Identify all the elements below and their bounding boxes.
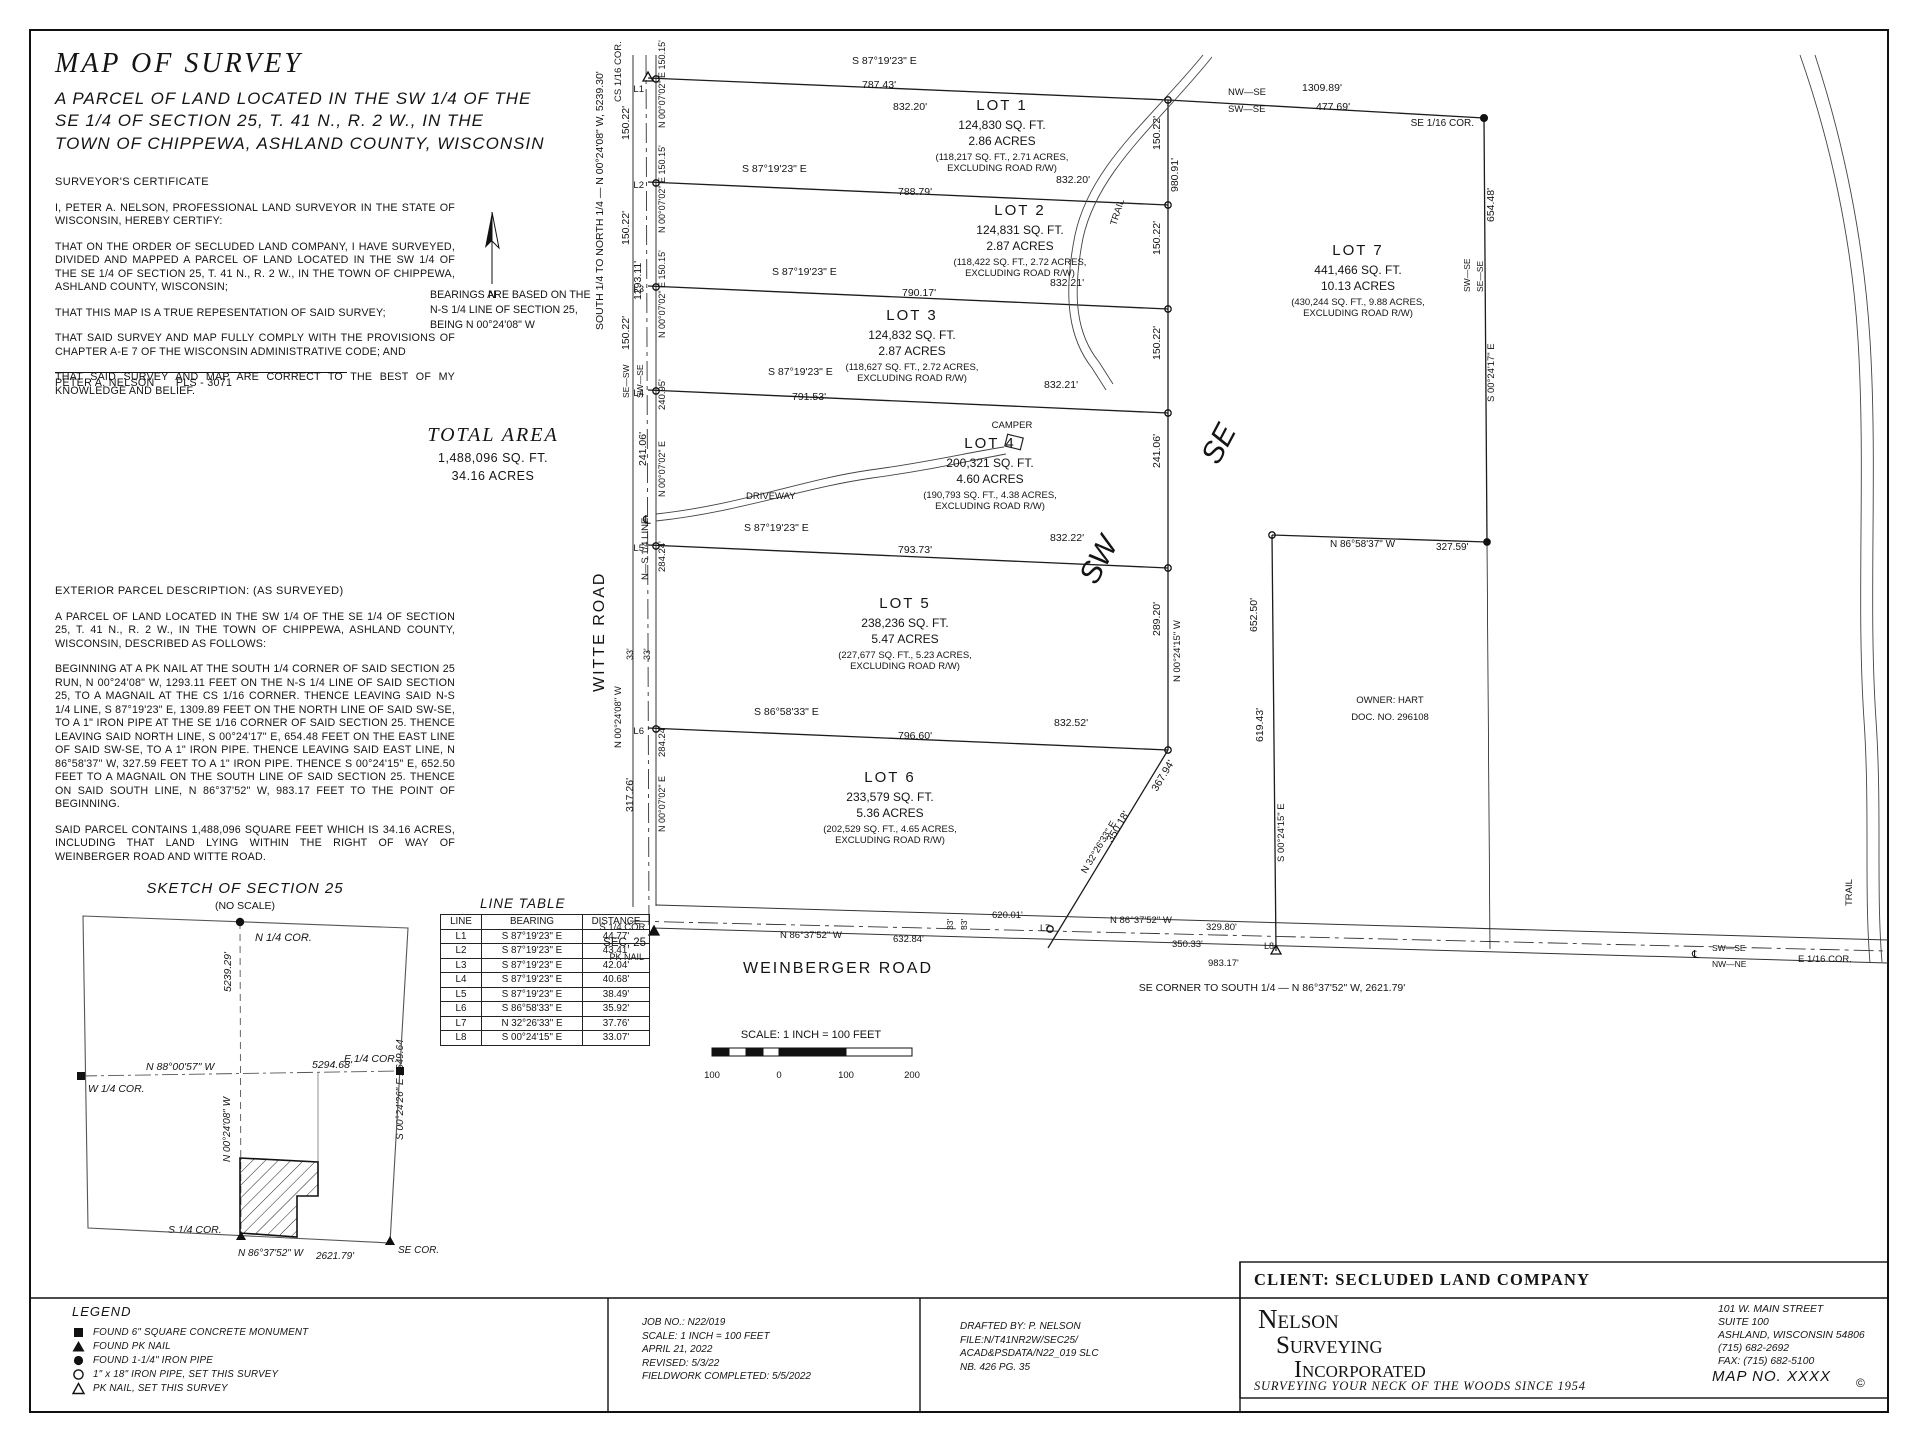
dimension-label: S 00°24'17" E <box>1486 343 1497 402</box>
certificate-paragraph: I, PETER A. NELSON, PROFESSIONAL LAND SU… <box>55 202 455 229</box>
lot-label-line: 5.47 ACRES <box>871 632 938 646</box>
lot-label-line: EXCLUDING ROAD R/W) <box>935 501 1045 512</box>
lot-label-line: EXCLUDING ROAD R/W) <box>1303 308 1413 319</box>
drafting-line: ACAD&PSDATA/N22_019 SLC <box>960 1347 1099 1361</box>
dimension-label: 329.80' <box>1206 922 1237 933</box>
lot-label-line: 124,831 SQ. FT. <box>976 223 1063 237</box>
dimension-label: 150.22' <box>1151 326 1163 360</box>
line-table-header-row: LINE BEARING DISTANCE <box>441 915 650 930</box>
dimension-label: 327.59' <box>1436 542 1469 553</box>
lot-label-line: 441,466 SQ. FT. <box>1314 263 1401 277</box>
lot-label-line: 4.60 ACRES <box>956 472 1023 486</box>
line-table-cell: S 87°19'23" E <box>482 973 583 988</box>
dimension-label: 832.52' <box>1054 717 1088 729</box>
map-number: MAP NO. XXXX <box>1712 1368 1831 1385</box>
drafting-line: NB. 426 PG. 35 <box>960 1361 1099 1375</box>
line-table-cell: S 87°19'23" E <box>482 987 583 1002</box>
signature-title: PLS - 3071 <box>176 377 232 389</box>
corner-label: CS 1/16 COR. <box>613 41 624 102</box>
dimension-label: 832.20' <box>893 101 927 113</box>
dimension-label: N 00°24'08" W <box>613 686 624 748</box>
line-table-row: L5S 87°19'23" E38.49' <box>441 987 650 1002</box>
road-label: WEINBERGER ROAD <box>743 960 933 977</box>
line-table-cell: S 00°24'15" E <box>482 1031 583 1046</box>
total-area-heading: TOTAL AREA <box>398 424 588 447</box>
total-area-acres: 34.16 ACRES <box>398 469 588 483</box>
corner-label: E 1/4 COR. <box>344 1053 398 1065</box>
dimension-label: 241.06' <box>1151 434 1163 468</box>
line-table-header: LINE <box>441 915 482 930</box>
lot-label-line: (118,422 SQ. FT., 2.72 ACRES, <box>954 257 1087 268</box>
bearings-line: BEING N 00°24'08" W <box>430 318 591 333</box>
dimension-label: SOUTH 1/4 TO NORTH 1/4 — N 00°24'08" W, … <box>594 71 606 330</box>
copyright-icon: © <box>1856 1376 1865 1390</box>
dimension-label: N 86°37'52" W <box>780 930 842 941</box>
line-table-cell: S 86°58'33" E <box>482 1002 583 1017</box>
line-table-row: L1S 87°19'23" E44.77' <box>441 929 650 944</box>
drafting-info-block: DRAFTED BY: P. NELSON FILE:N/T41NR2W/SEC… <box>960 1320 1099 1374</box>
lot-label-line: 5.36 ACRES <box>856 806 923 820</box>
firm-address: 101 W. MAIN STREET SUITE 100 ASHLAND, WI… <box>1718 1303 1865 1368</box>
dimension-label: S 00°24'15" E <box>1276 803 1287 862</box>
corner-label: W 1/4 COR. <box>88 1083 145 1095</box>
corner-label: SE 1/16 COR. <box>1411 118 1474 129</box>
lot-label-line: (190,793 SQ. FT., 4.38 ACRES, <box>923 490 1057 501</box>
dimension-label: 983.17' <box>1208 958 1239 969</box>
dimension-label: N 00°07'02" E 150.15' <box>657 250 667 338</box>
dimension-label: 150.22' <box>620 211 632 245</box>
filled-square-icon <box>72 1326 86 1339</box>
lot-label-line: LOT 6 <box>864 769 915 786</box>
filled-circle-icon <box>72 1354 86 1367</box>
open-triangle-icon <box>72 1382 86 1395</box>
job-info-line: SCALE: 1 INCH = 100 FEET <box>642 1330 811 1344</box>
legend-item-label: PK NAIL, SET THIS SURVEY <box>93 1383 228 1394</box>
line-table-cell: S 87°19'23" E <box>482 929 583 944</box>
line-table-cell: S 87°19'23" E <box>482 944 583 959</box>
job-info-block: JOB NO.: N22/019 SCALE: 1 INCH = 100 FEE… <box>642 1316 811 1384</box>
dimension-label: S 87°19'23" E <box>852 55 917 67</box>
line-table-row: L6S 86°58'33" E35.92' <box>441 1002 650 1017</box>
lot-label-line: LOT 4 <box>964 435 1015 452</box>
dimension-label: 832.20' <box>1056 174 1090 186</box>
lot-label-line: (227,677 SQ. FT., 5.23 ACRES, <box>838 650 972 661</box>
dimension-label: SE CORNER TO SOUTH 1/4 — N 86°37'52" W, … <box>1139 982 1406 994</box>
lot-label-line: LOT 7 <box>1332 242 1383 259</box>
corner-label: N 1/4 COR. <box>255 932 312 944</box>
signature-area: PETER A. NELSON PLS - 3071 <box>55 360 347 389</box>
line-table-cell: L8 <box>441 1031 482 1046</box>
dimension-label: L6 <box>633 726 644 737</box>
line-table-cell: L7 <box>441 1016 482 1031</box>
line-table-row: L4S 87°19'23" E40.68' <box>441 973 650 988</box>
legend-item: PK NAIL, SET THIS SURVEY <box>72 1381 308 1395</box>
sketch-title: SKETCH OF SECTION 25 <box>146 880 343 897</box>
dimension-label: N 00°07'02" E 150.15' <box>657 145 667 233</box>
dimension-label: 796.60' <box>898 730 932 742</box>
legend-item: FOUND PK NAIL <box>72 1339 308 1353</box>
dimension-label: SW—SE <box>1228 104 1265 115</box>
dimension-label: N—S 1/4 LINE <box>640 518 651 580</box>
dimension-label: 791.53' <box>792 391 826 403</box>
dimension-label: N 00°24'15" W <box>1172 620 1183 682</box>
bearings-line: BEARINGS ARE BASED ON THE <box>430 288 591 303</box>
dimension-label: ℄ <box>1691 949 1699 961</box>
poi-label: DRIVEWAY <box>746 491 796 502</box>
title-block: MAP OF SURVEY A PARCEL OF LAND LOCATED I… <box>55 48 544 155</box>
dimension-label: 619.43' <box>1254 708 1266 742</box>
line-table-row: L2S 87°19'23" E43.41' <box>441 944 650 959</box>
line-table-cell: L6 <box>441 1002 482 1017</box>
line-table-cell: 37.76' <box>583 1016 650 1031</box>
lot-label-line: 124,830 SQ. FT. <box>958 118 1045 132</box>
line-table-cell: L4 <box>441 973 482 988</box>
trail-lines <box>1069 55 1882 963</box>
lot-label-lot-2: LOT 2124,831 SQ. FT.2.87 ACRES(118,422 S… <box>954 202 1087 279</box>
dimension-label: 1293.11' <box>632 261 644 300</box>
parcel-description: EXTERIOR PARCEL DESCRIPTION: (AS SURVEYE… <box>55 585 455 876</box>
line-table-cell: 35.92' <box>583 1002 650 1017</box>
line-table-cell: 38.49' <box>583 987 650 1002</box>
firm-line: Nelson <box>1258 1306 1426 1333</box>
dimension-label: 832.21' <box>1044 379 1078 391</box>
dimension-label: 5239.29' <box>222 951 234 992</box>
line-table-block: LINE TABLE LINE BEARING DISTANCE L1S 87°… <box>440 896 650 1046</box>
dimension-label: SE—SW <box>621 364 631 398</box>
address-line: ASHLAND, WISCONSIN 54806 <box>1718 1329 1865 1342</box>
lot-label-line: 200,321 SQ. FT. <box>946 456 1033 470</box>
dimension-label: NW—NE <box>1712 959 1747 969</box>
dimension-label: 317.26' <box>624 778 636 812</box>
address-line: (715) 682-2692 <box>1718 1342 1865 1355</box>
north-arrow-icon <box>485 212 499 284</box>
total-area-sqft: 1,488,096 SQ. FT. <box>398 451 588 465</box>
dimension-label: N 32°26'33" E <box>1079 819 1119 875</box>
dimension-label: 652.50' <box>1248 598 1260 632</box>
lot-boundaries <box>648 78 1490 951</box>
legend-item-label: FOUND 1-1/4" IRON PIPE <box>93 1355 213 1366</box>
lot-label-line: (118,627 SQ. FT., 2.72 ACRES, <box>846 362 979 373</box>
dimension-label: 1309.89' <box>1302 82 1342 94</box>
legend-item: FOUND 6" SQUARE CONCRETE MONUMENT <box>72 1325 308 1339</box>
certificate-paragraph: THAT SAID SURVEY AND MAP FULLY COMPLY WI… <box>55 332 455 359</box>
lot-label-lot-4: LOT 4200,321 SQ. FT.4.60 ACRES(190,793 S… <box>923 435 1057 512</box>
job-info-line: REVISED: 5/3/22 <box>642 1357 811 1371</box>
line-table-row: L3S 87°19'23" E42.04' <box>441 958 650 973</box>
road-label: WITTE ROAD <box>591 572 608 692</box>
legend-title: LEGEND <box>72 1304 308 1319</box>
dimension-label: 150.22' <box>620 316 632 350</box>
corner-label: SE COR. <box>398 1245 439 1256</box>
open-circle-icon <box>72 1368 86 1381</box>
line-table-cell: L3 <box>441 958 482 973</box>
dimension-label: N 00°07'02" E 150.15' <box>657 40 667 128</box>
dimension-label: 620.01' <box>992 910 1023 921</box>
lot-label-line: EXCLUDING ROAD R/W) <box>857 373 967 384</box>
firm-line: Surveying <box>1276 1333 1426 1358</box>
lot-label-line: 238,236 SQ. FT. <box>861 616 948 630</box>
dimension-label: 150.22' <box>620 106 632 140</box>
owner-label: OWNER: HART <box>1356 695 1424 706</box>
dimension-label: S 86°58'33" E <box>754 706 819 718</box>
dimension-label: 350.33' <box>1172 939 1203 950</box>
signature-line <box>55 360 347 373</box>
dimension-label: 367.94' <box>1149 758 1177 793</box>
dimension-label: 289.20' <box>1151 602 1163 636</box>
dimension-label: SW—SE <box>1462 258 1472 292</box>
lot-label-lot-5: LOT 5238,236 SQ. FT.5.47 ACRES(227,677 S… <box>838 595 972 672</box>
lot-label-line: EXCLUDING ROAD R/W) <box>850 661 960 672</box>
filled-triangle-icon <box>72 1340 86 1353</box>
dimension-label: 241.06' <box>637 432 649 466</box>
lot-label-line: (202,529 SQ. FT., 4.65 ACRES, <box>823 824 957 835</box>
lot-label-line: (118,217 SQ. FT., 2.71 ACRES, <box>936 152 1069 163</box>
lot-label-line: LOT 5 <box>879 595 930 612</box>
dimension-label: S 87°19'23" E <box>742 163 807 175</box>
dimension-label: L2 <box>633 180 644 191</box>
dimension-label: 33' <box>959 919 969 930</box>
dimension-label: 477.69' <box>1316 101 1350 113</box>
line-table-cell: 33.07' <box>583 1031 650 1046</box>
quarter-label: SE <box>1195 418 1243 470</box>
dimension-label: N 00°07'02" E <box>657 776 667 832</box>
drafting-line: DRAFTED BY: P. NELSON <box>960 1320 1099 1334</box>
total-area-block: TOTAL AREA 1,488,096 SQ. FT. 34.16 ACRES <box>398 424 588 483</box>
corner-markers <box>643 72 1490 954</box>
subtitle-line: TOWN OF CHIPPEWA, ASHLAND COUNTY, WISCON… <box>55 133 544 155</box>
lot-label-lot-3: LOT 3124,832 SQ. FT.2.87 ACRES(118,627 S… <box>846 307 979 384</box>
line-table: LINE BEARING DISTANCE L1S 87°19'23" E44.… <box>440 914 650 1046</box>
lot-label-line: 2.86 ACRES <box>968 134 1035 148</box>
legend-item-label: 1" x 18" IRON PIPE, SET THIS SURVEY <box>93 1369 278 1380</box>
dimension-label: 33' <box>642 648 652 660</box>
line-table-cell: 44.77' <box>583 929 650 944</box>
lot-label-line: EXCLUDING ROAD R/W) <box>947 163 1057 174</box>
poi-label: CAMPER <box>992 420 1033 431</box>
legend-item-label: FOUND 6" SQUARE CONCRETE MONUMENT <box>93 1327 308 1338</box>
certificate-paragraph: THAT ON THE ORDER OF SECLUDED LAND COMPA… <box>55 241 455 295</box>
dimension-label: SW—SE <box>635 364 645 398</box>
page-title: MAP OF SURVEY <box>55 48 544 80</box>
dimension-label: 832.22' <box>1050 532 1084 544</box>
lot-label-line: 233,579 SQ. FT. <box>846 790 933 804</box>
address-line: 101 W. MAIN STREET <box>1718 1303 1865 1316</box>
dimension-label: SE—SE <box>1475 260 1485 292</box>
certificate-heading: SURVEYOR'S CERTIFICATE <box>55 176 455 188</box>
lot-label-line: LOT 2 <box>994 202 1045 219</box>
signature-name: PETER A. NELSON <box>55 377 155 389</box>
info-band-borders <box>30 1262 1888 1412</box>
firm-name: Nelson Surveying Incorporated <box>1258 1306 1426 1382</box>
section-sketch <box>77 916 408 1245</box>
owner-label: DOC. NO. 296108 <box>1351 712 1429 723</box>
lot-label-lot-7: LOT 7441,466 SQ. FT.10.13 ACRES(430,244 … <box>1291 242 1425 319</box>
scale-tick: 100 <box>838 1070 854 1081</box>
legend-block: LEGEND FOUND 6" SQUARE CONCRETE MONUMENT… <box>72 1304 308 1395</box>
dimension-label: S 87°19'23" E <box>768 366 833 378</box>
dimension-label: 2621.79' <box>315 1251 355 1262</box>
dimension-label: NW—SE <box>1228 87 1266 98</box>
dimension-label: SW—SE <box>1712 943 1746 953</box>
job-info-line: APRIL 21, 2022 <box>642 1343 811 1357</box>
line-table-row: L7N 32°26'33" E37.76' <box>441 1016 650 1031</box>
address-line: FAX: (715) 682-5100 <box>1718 1355 1865 1368</box>
dimension-label: 654.48' <box>1485 188 1497 222</box>
lot-label-line: EXCLUDING ROAD R/W) <box>965 268 1075 279</box>
lot-label-lot-1: LOT 1124,830 SQ. FT.2.86 ACRES(118,217 S… <box>936 97 1069 174</box>
legend-item: 1" x 18" IRON PIPE, SET THIS SURVEY <box>72 1367 308 1381</box>
dimension-label: 790.17' <box>902 287 936 299</box>
dimension-label: N 00°24'08" W <box>222 1095 233 1162</box>
client-name: CLIENT: SECLUDED LAND COMPANY <box>1254 1270 1590 1290</box>
lot-label-line: LOT 3 <box>886 307 937 324</box>
dimension-label: L7 <box>1040 923 1050 933</box>
scale-tick: 0 <box>776 1070 781 1081</box>
dimension-label: 793.73' <box>898 544 932 556</box>
line-table-cell: S 87°19'23" E <box>482 958 583 973</box>
line-table-cell: 40.68' <box>583 973 650 988</box>
subtitle-line: A PARCEL OF LAND LOCATED IN THE SW 1/4 O… <box>55 88 544 110</box>
dimension-label: 284.24' <box>657 726 668 757</box>
poi-label: TRAIL <box>1844 879 1855 906</box>
line-table-cell: L2 <box>441 944 482 959</box>
legend-item-label: FOUND PK NAIL <box>93 1341 171 1352</box>
line-table-cell: L1 <box>441 929 482 944</box>
dimension-label: L1 <box>633 84 644 95</box>
scale-tick: 100 <box>704 1070 720 1081</box>
sketch-subtitle: (NO SCALE) <box>215 900 275 912</box>
corner-label: E 1/16 COR. <box>1798 954 1852 965</box>
drafting-line: FILE:N/T41NR2W/SEC25/ <box>960 1334 1099 1348</box>
scale-tick: 200 <box>904 1070 920 1081</box>
dimension-label: 632.84' <box>893 934 924 945</box>
firm-tagline: SURVEYING YOUR NECK OF THE WOODS SINCE 1… <box>1254 1379 1586 1394</box>
line-table-row: L8S 00°24'15" E33.07' <box>441 1031 650 1046</box>
description-paragraph: BEGINNING AT A PK NAIL AT THE SOUTH 1/4 … <box>55 663 455 811</box>
subtitle-line: SE 1/4 OF SECTION 25, T. 41 N., R. 2 W.,… <box>55 110 544 132</box>
bearings-line: N-S 1/4 LINE OF SECTION 25, <box>430 303 591 318</box>
lot-label-line: 124,832 SQ. FT. <box>868 328 955 342</box>
line-table-title: LINE TABLE <box>480 896 650 911</box>
address-line: SUITE 100 <box>1718 1316 1865 1329</box>
legend-item: FOUND 1-1/4" IRON PIPE <box>72 1353 308 1367</box>
dimension-label: 150.22' <box>1151 116 1163 150</box>
job-info-line: FIELDWORK COMPLETED: 5/5/2022 <box>642 1370 811 1384</box>
description-paragraph: A PARCEL OF LAND LOCATED IN THE SW 1/4 O… <box>55 611 455 651</box>
lot-label-line: 2.87 ACRES <box>986 239 1053 253</box>
dimension-label: 33' <box>945 919 955 930</box>
line-table-cell: N 32°26'33" E <box>482 1016 583 1031</box>
line-table-header: DISTANCE <box>583 915 650 930</box>
description-paragraph: SAID PARCEL CONTAINS 1,488,096 SQUARE FE… <box>55 824 455 864</box>
line-table-cell: 42.04' <box>583 958 650 973</box>
lot-label-lot-6: LOT 6233,579 SQ. FT.5.36 ACRES(202,529 S… <box>823 769 957 846</box>
dimension-label: 284.24' <box>657 541 668 572</box>
lot-label-line: (430,244 SQ. FT., 9.88 ACRES, <box>1291 297 1425 308</box>
lot-label-line: LOT 1 <box>976 97 1027 114</box>
line-table-header: BEARING <box>482 915 583 930</box>
dimension-label: 150.22' <box>1151 221 1163 255</box>
dimension-label: 980.91' <box>1169 158 1181 192</box>
dimension-label: N 88°00'57" W <box>146 1061 215 1073</box>
dimension-label: N 86°58'37" W <box>1330 539 1396 550</box>
bearings-note: BEARINGS ARE BASED ON THE N-S 1/4 LINE O… <box>430 288 591 332</box>
lot-label-line: EXCLUDING ROAD R/W) <box>835 835 945 846</box>
scale-label: SCALE: 1 INCH = 100 FEET <box>741 1029 882 1041</box>
lot-label-line: 2.87 ACRES <box>878 344 945 358</box>
line-table-cell: 43.41' <box>583 944 650 959</box>
dimension-label: S 87°19'23" E <box>744 522 809 534</box>
description-heading: EXTERIOR PARCEL DESCRIPTION: (AS SURVEYE… <box>55 585 455 597</box>
job-info-line: JOB NO.: N22/019 <box>642 1316 811 1330</box>
parcel-hatch <box>240 1158 318 1237</box>
certificate-paragraph: THAT THIS MAP IS A TRUE REPESENTATION OF… <box>55 307 455 320</box>
line-table-cell: L5 <box>441 987 482 1002</box>
dimension-label: 788.79' <box>898 186 932 198</box>
dimension-label: N 86°37'52" W <box>1110 915 1172 926</box>
survey-sheet: S 87°19'23" E787.43'832.20'NW—SE1309.89'… <box>0 0 1920 1440</box>
dimension-label: L8 <box>1264 941 1274 951</box>
lot-label-line: 10.13 ACRES <box>1321 279 1395 293</box>
dimension-label: N 00°07'02" E <box>657 441 667 497</box>
dimension-label: N 86°37'52" W <box>238 1248 305 1259</box>
dimension-label: 33' <box>625 648 635 660</box>
scale-bar <box>712 1048 912 1056</box>
dimension-label: 787.43' <box>862 79 896 91</box>
dimension-label: 240.95' <box>657 379 668 410</box>
dimension-label: S 87°19'23" E <box>772 266 837 278</box>
